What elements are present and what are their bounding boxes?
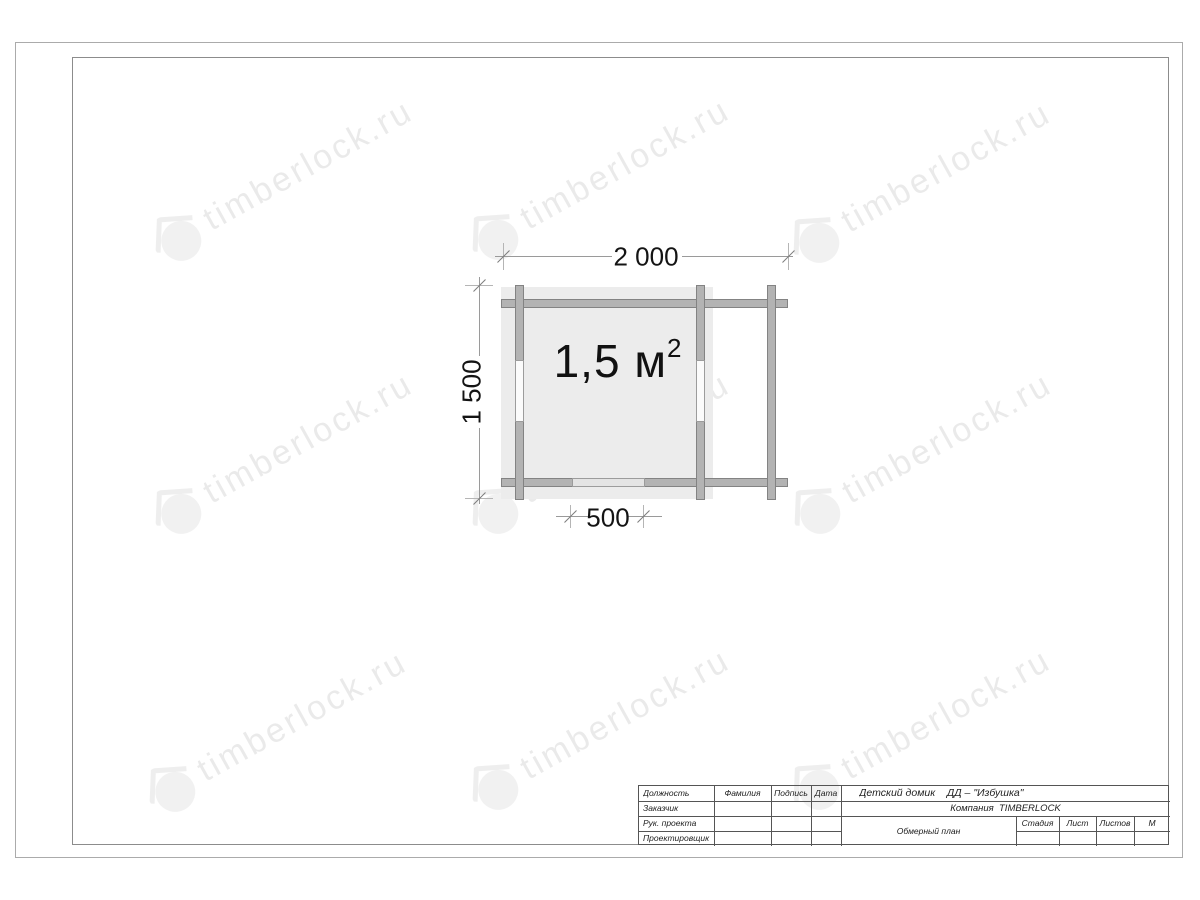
- tb-sheet: Лист: [1059, 816, 1096, 831]
- tb-stage: Стадия: [1016, 816, 1059, 831]
- tb-designer: Проектировщик: [643, 831, 713, 846]
- tb-position-header: Должность: [643, 786, 713, 801]
- dimension-text-door: 500: [586, 503, 629, 534]
- tb-company: Компания TIMBERLOCK: [841, 801, 1170, 816]
- tb-drawing-name: Обмерный план: [841, 816, 1016, 846]
- title-block: Должность Фамилия Подпись Дата Детский д…: [638, 785, 1169, 845]
- title-block-line: [1016, 831, 1170, 832]
- dimension-line: [495, 256, 612, 257]
- tb-name-header: Фамилия: [714, 786, 771, 801]
- floor-area: [501, 287, 713, 499]
- tb-scale: М: [1134, 816, 1170, 831]
- dimension-text-height: 1 500: [457, 359, 488, 424]
- terrace-post-right: [767, 285, 776, 500]
- tb-date-header: Дата: [811, 786, 841, 801]
- tb-project-manager: Рук. проекта: [643, 816, 713, 831]
- dimension-line: [479, 428, 480, 504]
- tb-project-title: Детский домик ДД – "Избушка": [859, 786, 1168, 801]
- tb-sheets: Листов: [1096, 816, 1134, 831]
- tb-signature-header: Подпись: [771, 786, 811, 801]
- dimension-line: [479, 277, 480, 356]
- dimension-line: [628, 516, 662, 517]
- area-label: 1,5 м2: [554, 334, 683, 388]
- window-opening-left: [515, 360, 524, 422]
- window-opening-middle: [696, 360, 705, 422]
- door-opening: [572, 478, 645, 487]
- dimension-text-width: 2 000: [613, 242, 678, 273]
- dimension-line: [682, 256, 793, 257]
- dimension-line: [556, 516, 590, 517]
- tb-customer: Заказчик: [643, 801, 713, 816]
- wall-log-top: [501, 299, 788, 308]
- drawing-sheet: timberlock.ru timberlock.ru timberlock.r…: [0, 0, 1200, 900]
- area-superscript: 2: [667, 333, 682, 363]
